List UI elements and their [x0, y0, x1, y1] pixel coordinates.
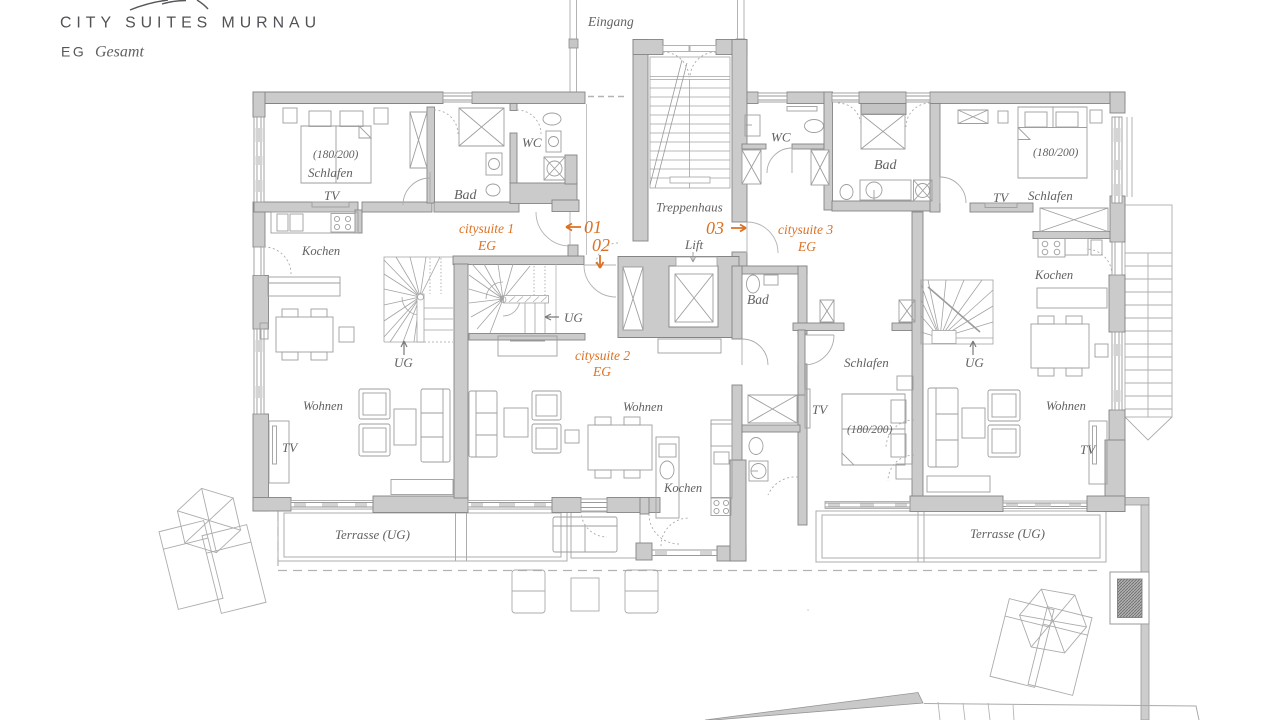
- svg-text:(180/200): (180/200): [313, 149, 359, 161]
- svg-text:Schlafen: Schlafen: [308, 165, 353, 180]
- svg-text:EG: EG: [477, 238, 496, 253]
- svg-text:TV: TV: [282, 440, 299, 455]
- svg-text:UG: UG: [564, 310, 583, 325]
- svg-text:Terrasse (UG): Terrasse (UG): [970, 526, 1045, 541]
- svg-text:CITY SUITES MURNAU: CITY SUITES MURNAU: [60, 15, 321, 32]
- svg-text:Kochen: Kochen: [301, 244, 340, 258]
- svg-text:03: 03: [706, 218, 724, 238]
- svg-text:(180/200): (180/200): [1033, 147, 1079, 159]
- svg-text:UG: UG: [394, 355, 413, 370]
- svg-text:Eingang: Eingang: [587, 14, 634, 29]
- svg-text:Terrasse (UG): Terrasse (UG): [335, 527, 410, 542]
- svg-text:Kochen: Kochen: [1034, 268, 1073, 282]
- svg-text:EG: EG: [797, 239, 816, 254]
- svg-text:TV: TV: [324, 188, 341, 203]
- svg-text:Treppenhaus: Treppenhaus: [656, 200, 723, 215]
- svg-text:TV: TV: [1080, 442, 1097, 457]
- svg-text:Kochen: Kochen: [663, 481, 702, 495]
- svg-text:citysuite 1: citysuite 1: [459, 221, 514, 236]
- svg-text:Wohnen: Wohnen: [303, 399, 343, 413]
- svg-text:TV: TV: [812, 402, 829, 417]
- svg-text:EG: EG: [61, 44, 86, 60]
- svg-text:Wohnen: Wohnen: [1046, 399, 1086, 413]
- svg-text:EG: EG: [592, 364, 611, 379]
- svg-text:01: 01: [584, 217, 602, 237]
- svg-text:Schlafen: Schlafen: [844, 355, 889, 370]
- svg-text:UG: UG: [965, 355, 984, 370]
- svg-text:Bad: Bad: [874, 158, 898, 173]
- svg-text:WC: WC: [771, 130, 791, 145]
- svg-text:(180/200): (180/200): [847, 424, 893, 436]
- svg-text:Bad: Bad: [747, 292, 769, 307]
- svg-text:Wohnen: Wohnen: [623, 400, 663, 414]
- svg-text:citysuite 2: citysuite 2: [575, 348, 630, 363]
- svg-text:Schlafen: Schlafen: [1028, 188, 1073, 203]
- svg-text:citysuite 3: citysuite 3: [778, 222, 833, 237]
- svg-text:WC: WC: [522, 135, 542, 150]
- svg-text:Gesamt: Gesamt: [95, 44, 144, 61]
- svg-text:Lift: Lift: [684, 237, 703, 252]
- svg-text:02: 02: [592, 235, 610, 255]
- svg-text:TV: TV: [993, 190, 1010, 205]
- svg-text:Bad: Bad: [454, 188, 478, 203]
